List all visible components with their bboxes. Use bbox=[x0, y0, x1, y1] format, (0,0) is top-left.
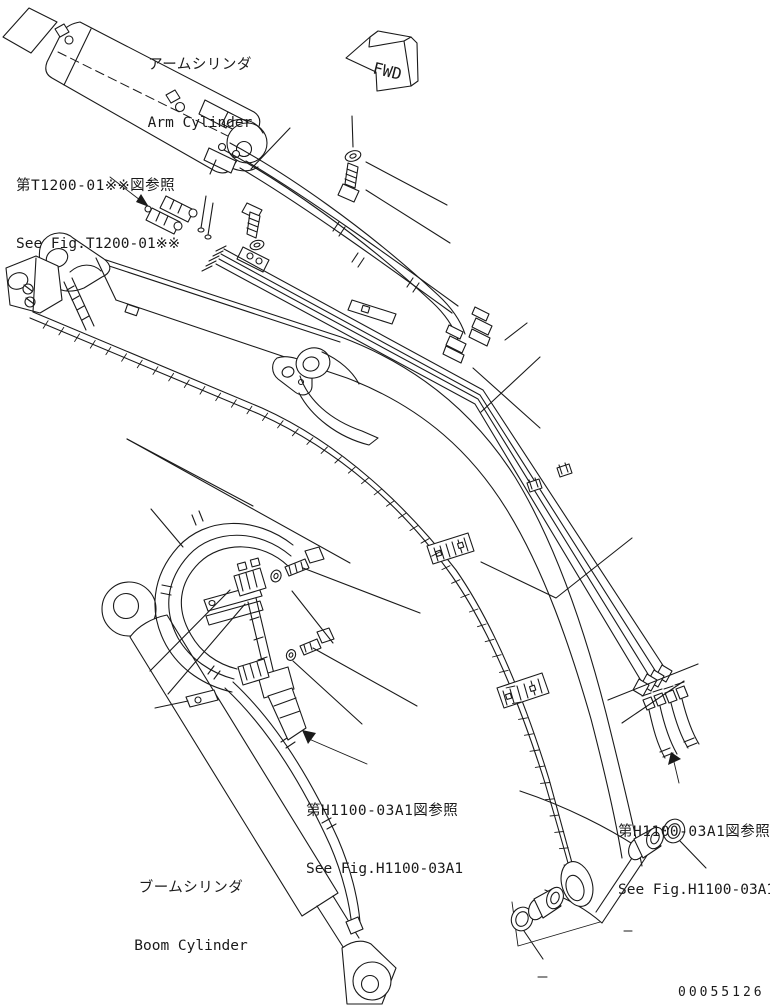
diagram-root: FWD bbox=[0, 0, 770, 1005]
arm-cylinder-label-jp: アームシリンダ bbox=[138, 56, 262, 74]
pipe-bundle-lower bbox=[642, 682, 699, 758]
ref-h1100-center-label-jp: 第H1100-03A1図参照 bbox=[306, 802, 463, 820]
ref-h1100-right-label-en: See Fig.H1100-03A1 bbox=[618, 881, 770, 899]
ref-h1100-right-label-jp: 第H1100-03A1図参照 bbox=[618, 823, 770, 841]
boom-boss bbox=[273, 344, 378, 445]
arm-cylinder-hoses bbox=[224, 143, 492, 363]
ref-h1100-right-label: 第H1100-03A1図参照 See Fig.H1100-03A1 bbox=[618, 783, 770, 939]
arm-cylinder-label-en: Arm Cylinder bbox=[138, 114, 262, 132]
ref-h1100-center-label: 第H1100-03A1図参照 See Fig.H1100-03A1 bbox=[306, 762, 463, 918]
pipe-bundle-upper bbox=[202, 246, 672, 696]
boom-cylinder-label-en: Boom Cylinder bbox=[128, 937, 254, 955]
ref-t1200-label: 第T1200-01※※図参照 See Fig.T1200-01※※ bbox=[16, 137, 180, 293]
ref-t1200-label-jp: 第T1200-01※※図参照 bbox=[16, 177, 180, 195]
ref-h1100-center-label-en: See Fig.H1100-03A1 bbox=[306, 860, 463, 878]
ref-t1200-label-en: See Fig.T1200-01※※ bbox=[16, 235, 180, 253]
boom-cylinder-label-jp: ブームシリンダ bbox=[128, 879, 254, 897]
fwd-sign: FWD bbox=[346, 31, 418, 91]
part-number: 00055126 bbox=[678, 985, 765, 1000]
boom-cylinder-label: ブームシリンダ Boom Cylinder bbox=[128, 839, 254, 995]
